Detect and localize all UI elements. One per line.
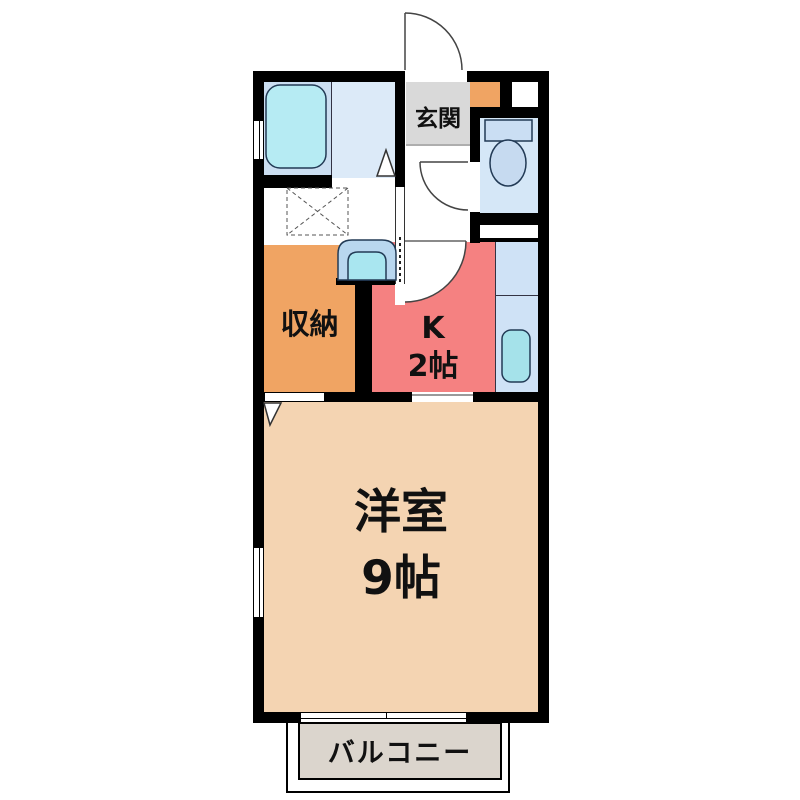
kitchen-label-line1: K bbox=[373, 312, 493, 347]
balcony-sliding-window bbox=[300, 712, 467, 723]
wall-segment bbox=[355, 278, 372, 402]
wall-segment bbox=[467, 712, 549, 723]
wall-segment bbox=[480, 238, 538, 242]
wall-segment bbox=[473, 392, 538, 402]
western-room-label-line1: 洋室 bbox=[264, 486, 538, 540]
entrance-door-swing bbox=[405, 13, 462, 70]
bathroom-window bbox=[253, 120, 264, 160]
wall-segment bbox=[467, 71, 549, 82]
kitchen-label-line2: 2帖 bbox=[373, 350, 493, 385]
sliding-door-pocket bbox=[395, 187, 405, 235]
wall-segment bbox=[253, 712, 300, 723]
wall-segment bbox=[253, 618, 264, 723]
wall-segment bbox=[500, 82, 512, 107]
entrance-step-line bbox=[406, 144, 470, 146]
bathroom-dry-area bbox=[332, 82, 396, 178]
wall-segment bbox=[253, 175, 332, 188]
wall-segment bbox=[253, 160, 264, 547]
western-room-label-line2: 9帖 bbox=[264, 552, 538, 606]
floor-plan: 玄関 収納 K 2帖 洋室 9帖 バルコニー bbox=[0, 0, 800, 800]
washbasin-base bbox=[336, 278, 398, 285]
bathroom-tub-area bbox=[264, 82, 332, 178]
shoe-cabinet bbox=[470, 82, 500, 107]
storage-door-opening bbox=[264, 392, 325, 402]
accordion-door bbox=[395, 235, 405, 284]
kitchen-counter bbox=[495, 242, 539, 392]
counter-divider bbox=[495, 295, 538, 296]
storage-label: 収納 bbox=[264, 308, 355, 341]
wall-segment bbox=[325, 392, 412, 402]
toilet-room bbox=[480, 118, 538, 213]
western-room-window bbox=[253, 547, 264, 618]
toilet-door-swing bbox=[420, 162, 468, 210]
wall-segment bbox=[253, 71, 264, 120]
wall-segment bbox=[395, 71, 405, 187]
wall-segment bbox=[470, 213, 538, 225]
wall-segment bbox=[538, 71, 549, 723]
wall-segment bbox=[470, 118, 480, 162]
bathroom-divider bbox=[331, 82, 332, 178]
wall-segment bbox=[470, 107, 538, 118]
balcony-label: バルコニー bbox=[298, 738, 502, 769]
door-clearance bbox=[395, 284, 405, 305]
wall-segment bbox=[253, 71, 405, 82]
entrance-label: 玄関 bbox=[406, 106, 470, 132]
kitchen-room-threshold bbox=[412, 394, 473, 396]
